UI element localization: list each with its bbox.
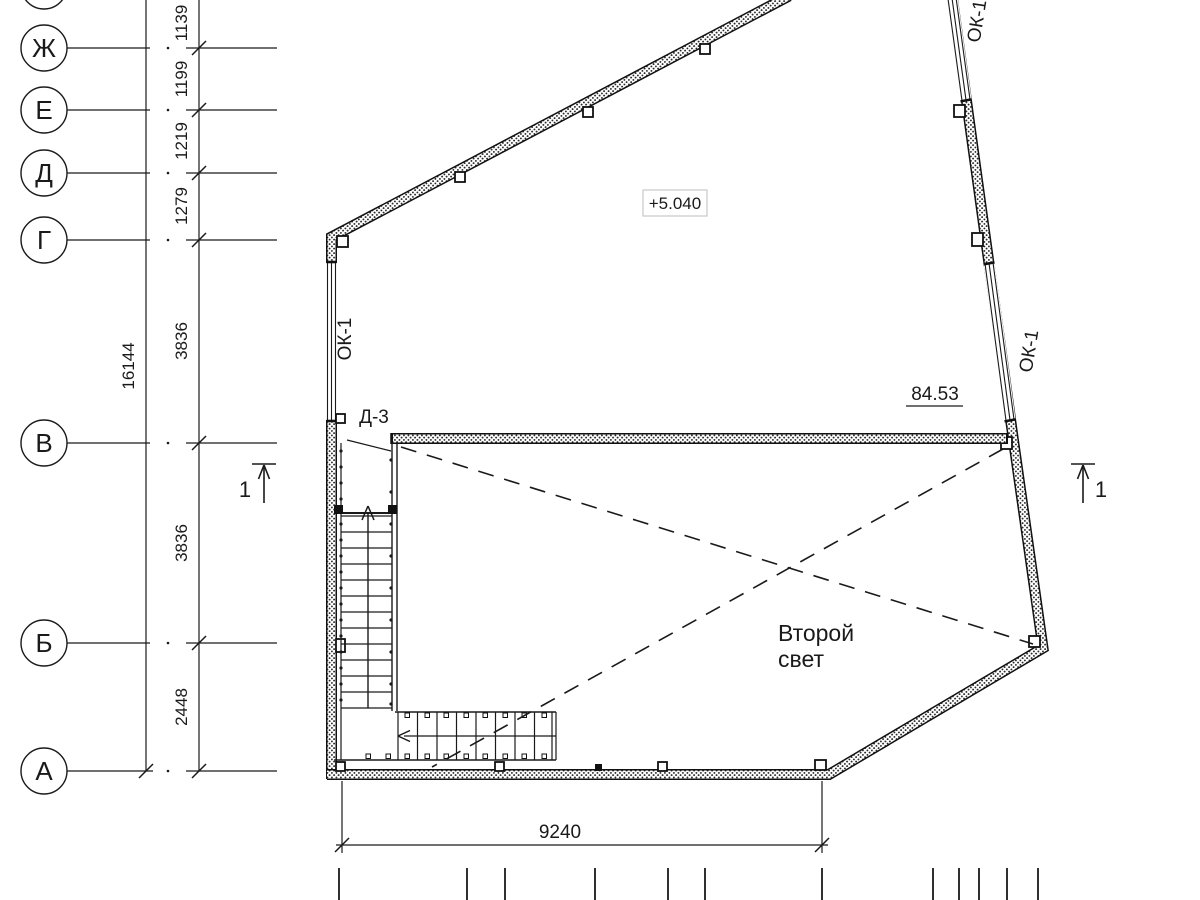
lower-extension-ticks bbox=[339, 868, 1038, 900]
dim-value: 1279 bbox=[172, 187, 191, 225]
level-mark-value: +5.040 bbox=[649, 194, 701, 213]
dim-value: 3836 bbox=[172, 322, 191, 360]
grid-axis-lines bbox=[67, 0, 277, 778]
axis-bubble-cut bbox=[21, 0, 67, 9]
dim-value: 1219 bbox=[172, 122, 191, 160]
door-leaf bbox=[347, 440, 391, 451]
section-mark-left bbox=[252, 464, 276, 503]
stair bbox=[334, 443, 556, 760]
axis-label: Д bbox=[35, 158, 53, 188]
window-tag-right: ОК-1 bbox=[1016, 328, 1043, 374]
section-mark-right bbox=[1071, 464, 1095, 503]
bottom-dimension bbox=[335, 781, 829, 853]
left-dimension-values: 1139 1199 1219 1279 3836 3836 2448 16144 bbox=[119, 5, 191, 726]
interior-wall bbox=[391, 433, 1008, 444]
level-mark: +5.040 bbox=[643, 190, 707, 216]
section-number-right: 1 bbox=[1095, 477, 1107, 502]
elevation-value: 84.53 bbox=[911, 384, 959, 405]
bottom-dimension-value: 9240 bbox=[539, 822, 581, 843]
axis-label: А bbox=[35, 756, 53, 786]
window-tag-left: ОК-1 bbox=[335, 318, 356, 361]
plan-canvas: Ж Е Д Г В Б А 1139 1199 1219 1279 3836 3… bbox=[0, 0, 1200, 900]
elevation-mark: 84.53 bbox=[906, 384, 963, 406]
dim-value: 1199 bbox=[172, 61, 191, 98]
stair-treads-vertical bbox=[341, 516, 392, 708]
axis-label: Б bbox=[35, 628, 52, 658]
axis-label: В bbox=[35, 428, 52, 458]
overall-dim-value: 16144 bbox=[119, 342, 138, 389]
section-number-left: 1 bbox=[239, 477, 251, 502]
column-markers bbox=[336, 44, 1040, 771]
window-right-lower bbox=[984, 262, 1016, 421]
axis-label: Е bbox=[35, 95, 52, 125]
axis-label: Ж bbox=[32, 33, 56, 63]
door-label: Д-3 bbox=[359, 407, 389, 428]
floor-plan-drawing: Ж Е Д Г В Б А 1139 1199 1219 1279 3836 3… bbox=[0, 0, 1200, 900]
column-marker-small bbox=[595, 764, 602, 771]
dim-value: 1139 bbox=[172, 5, 191, 42]
railing-posts bbox=[339, 449, 392, 705]
window-tag-top: ОК-1 bbox=[964, 0, 991, 44]
dim-value: 2448 bbox=[172, 688, 191, 726]
axis-labels: Ж Е Д Г В Б А bbox=[32, 33, 56, 786]
room-label: Второй свет bbox=[778, 620, 860, 672]
dim-value: 3836 bbox=[172, 524, 191, 562]
axis-line-dots bbox=[167, 47, 170, 773]
axis-label: Г bbox=[37, 225, 51, 255]
